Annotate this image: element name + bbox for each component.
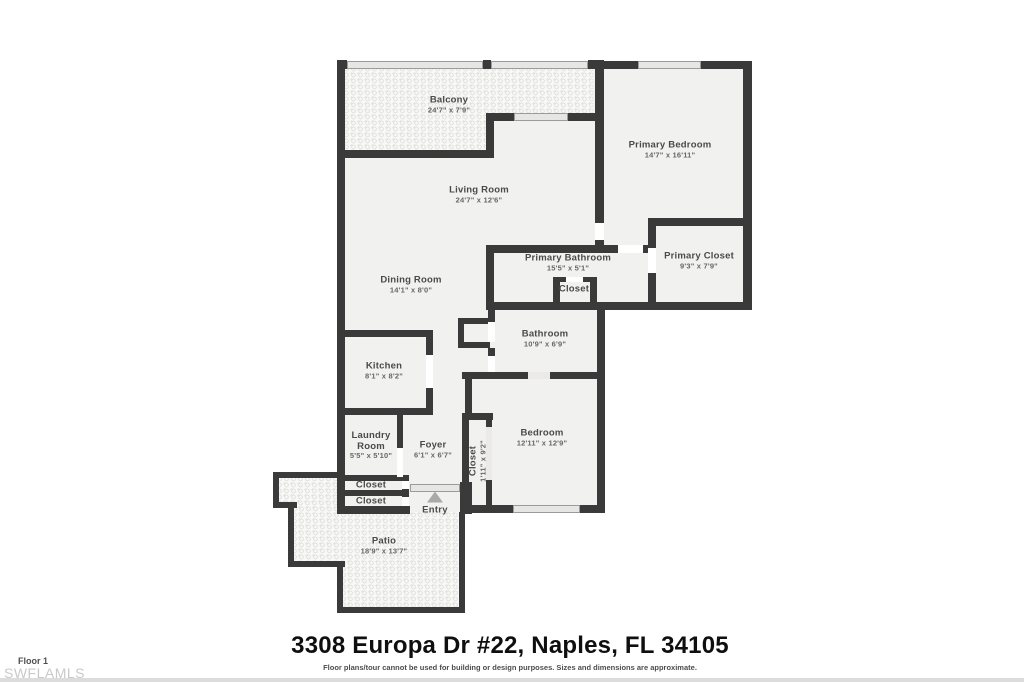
wall-segment (459, 512, 465, 613)
room-label-primary-closet: Primary Closet 9'3" x 7'9" (664, 251, 734, 270)
wall-segment (488, 348, 495, 356)
room-dims: 8'1" x 8'2" (365, 372, 403, 380)
wall-segment (568, 113, 595, 121)
wall-segment (486, 113, 494, 158)
room-name: Closet (559, 285, 589, 296)
window (491, 61, 588, 69)
wall-segment (483, 60, 491, 69)
wall-segment (486, 302, 752, 310)
entry-label: Entry (422, 505, 448, 516)
wall-segment (494, 113, 514, 121)
door-opening (402, 481, 409, 489)
entry-arrow-icon (427, 492, 443, 503)
room-name: Laundry Room (345, 431, 397, 452)
wall-segment (465, 379, 472, 415)
wall-segment (743, 62, 752, 310)
room-label-patio: Patio 18'9" x 13'7" (361, 536, 408, 555)
wall-segment (604, 61, 638, 69)
wall-segment (288, 502, 294, 567)
door-opening (595, 223, 604, 240)
room-label-balcony: Balcony 24'7" x 7'9" (428, 95, 470, 114)
room-dims: 1'11" x 9'2" (479, 440, 487, 482)
room-label-bathroom: Bathroom 10'9" x 6'9" (522, 329, 568, 348)
wall-segment (486, 245, 494, 310)
wall-segment (337, 561, 343, 613)
door-opening (397, 448, 403, 477)
floor-plan-canvas: Balcony 24'7" x 7'9" Primary Bedroom 14'… (0, 0, 1024, 682)
floor-plan-page: { "plan": { "rooms": [ {"name": "Balcony… (0, 0, 1024, 682)
wall-segment (337, 62, 345, 514)
wall-segment (486, 413, 492, 427)
room-label-laundry-room: Laundry Room 5'5" x 5'10" (345, 431, 397, 461)
room-dims: 9'3" x 7'9" (664, 262, 734, 270)
wall-segment (462, 372, 528, 379)
room-name: Closet (356, 497, 386, 508)
room-dims: 12'11" x 12'9" (517, 439, 568, 447)
wall-segment (426, 330, 433, 355)
door-opening (648, 248, 656, 273)
outdoor-floor (291, 506, 340, 565)
wall-segment (343, 150, 494, 158)
wall-segment (550, 372, 605, 379)
room-label-closet-1: Closet (356, 481, 386, 492)
bottom-border (0, 678, 1024, 682)
wall-segment (648, 218, 752, 226)
room-dims: 24'7" x 12'6" (449, 196, 509, 204)
room-dims: 24'7" x 7'9" (428, 106, 470, 114)
room-name: Closet (356, 481, 386, 492)
room-dims: 10'9" x 6'9" (522, 340, 568, 348)
room-label-foyer: Foyer 6'1" x 6'7" (414, 440, 452, 459)
door-opening (488, 322, 495, 342)
outdoor-floor (343, 114, 487, 152)
window (514, 113, 568, 121)
room-label-primary-bathroom: Primary Bathroom 15'5" x 5'1" (525, 253, 611, 272)
wall-segment (595, 62, 604, 223)
room-dims: 14'7" x 16'11" (629, 151, 712, 159)
door-opening (402, 497, 409, 506)
wall-segment (458, 342, 490, 348)
address-title: 3308 Europa Dr #22, Naples, FL 34105 (291, 632, 729, 660)
room-label-bedroom: Bedroom 12'11" x 12'9" (517, 428, 568, 447)
window (638, 61, 701, 69)
room-label-dining-room: Dining Room 14'1" x 8'0" (380, 275, 441, 294)
wall-segment (583, 277, 597, 282)
disclaimer-text: Floor plans/tour cannot be used for buil… (323, 663, 697, 672)
room-label-closet-small: Closet (559, 285, 589, 296)
wall-segment (337, 607, 465, 613)
door-opening (618, 245, 643, 253)
window (513, 505, 580, 513)
room-dims: 5'5" x 5'10" (345, 452, 397, 460)
door-opening (488, 356, 495, 372)
room-label-kitchen: Kitchen 8'1" x 8'2" (365, 361, 403, 380)
room-dims: 15'5" x 5'1" (525, 264, 611, 272)
wall-segment (343, 408, 433, 415)
door-opening (426, 355, 433, 388)
room-label-living-room: Living Room 24'7" x 12'6" (449, 185, 509, 204)
wall-segment (343, 330, 433, 337)
wall-segment (273, 472, 343, 478)
room-dims: 6'1" x 6'7" (414, 451, 452, 459)
outdoor-floor (340, 512, 461, 609)
wall-segment (553, 277, 566, 282)
room-label-primary-bedroom: Primary Bedroom 14'7" x 16'11" (629, 140, 712, 159)
wall-segment (397, 415, 403, 448)
room-label-closet-2: Closet (356, 497, 386, 508)
sliding-door-opening (528, 372, 550, 379)
door-opening (566, 277, 583, 282)
wall-segment (597, 308, 605, 513)
room-dims: 14'1" x 8'0" (380, 286, 441, 294)
room-label-closet-hall: Closet 1'11" x 9'2" (468, 440, 487, 482)
window (347, 61, 483, 69)
room-dims: 18'9" x 13'7" (361, 547, 408, 555)
wall-segment (486, 480, 492, 505)
